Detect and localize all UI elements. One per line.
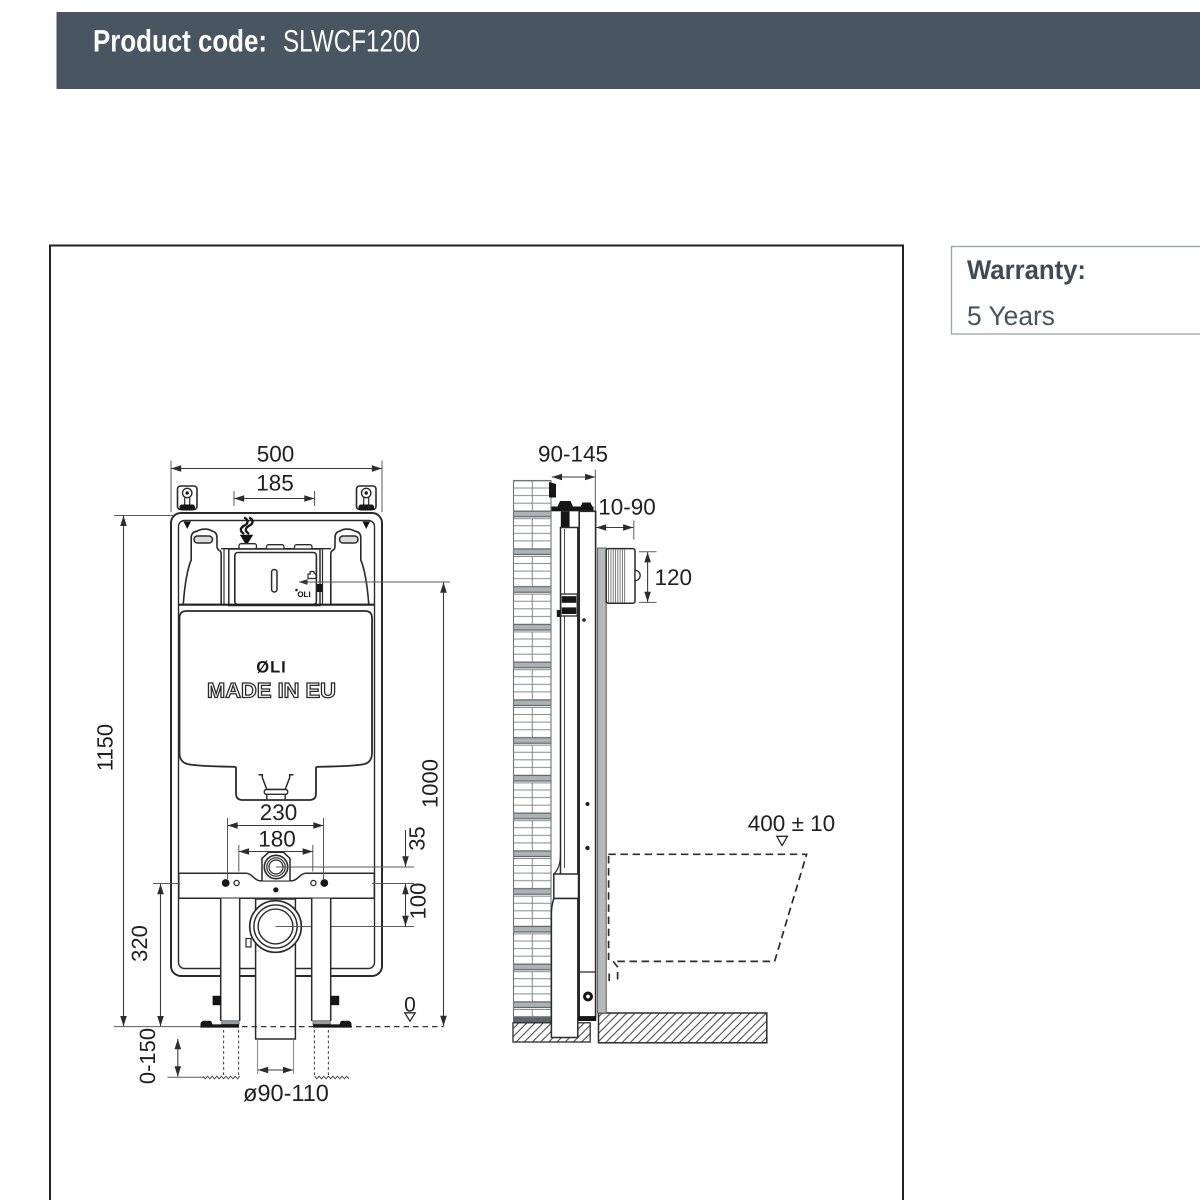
svg-text:90-145: 90-145 — [538, 442, 608, 467]
svg-text:5 Years: 5 Years — [967, 301, 1055, 331]
svg-text:ØLI: ØLI — [256, 659, 287, 677]
svg-text:35: 35 — [405, 826, 430, 850]
svg-text:400 ± 10: 400 ± 10 — [748, 811, 835, 836]
svg-text:10-90: 10-90 — [598, 495, 656, 520]
svg-text:Warranty:: Warranty: — [967, 255, 1086, 285]
svg-text:MADE IN EU: MADE IN EU — [207, 680, 336, 703]
svg-text:Product code:: Product code: — [93, 24, 267, 59]
svg-text:ø90-110: ø90-110 — [243, 1080, 329, 1106]
svg-text:320: 320 — [127, 925, 152, 962]
svg-text:185: 185 — [256, 471, 294, 496]
svg-text:1150: 1150 — [93, 724, 118, 771]
svg-text:500: 500 — [257, 442, 295, 467]
svg-text:1000: 1000 — [418, 759, 443, 808]
svg-text:OLI: OLI — [297, 590, 310, 599]
svg-text:100: 100 — [406, 883, 431, 920]
svg-text:0-150: 0-150 — [135, 1028, 160, 1084]
svg-text:120: 120 — [655, 565, 693, 590]
svg-text:180: 180 — [258, 827, 296, 852]
svg-text:230: 230 — [260, 800, 298, 825]
svg-text:SLWCF1200: SLWCF1200 — [283, 24, 420, 59]
